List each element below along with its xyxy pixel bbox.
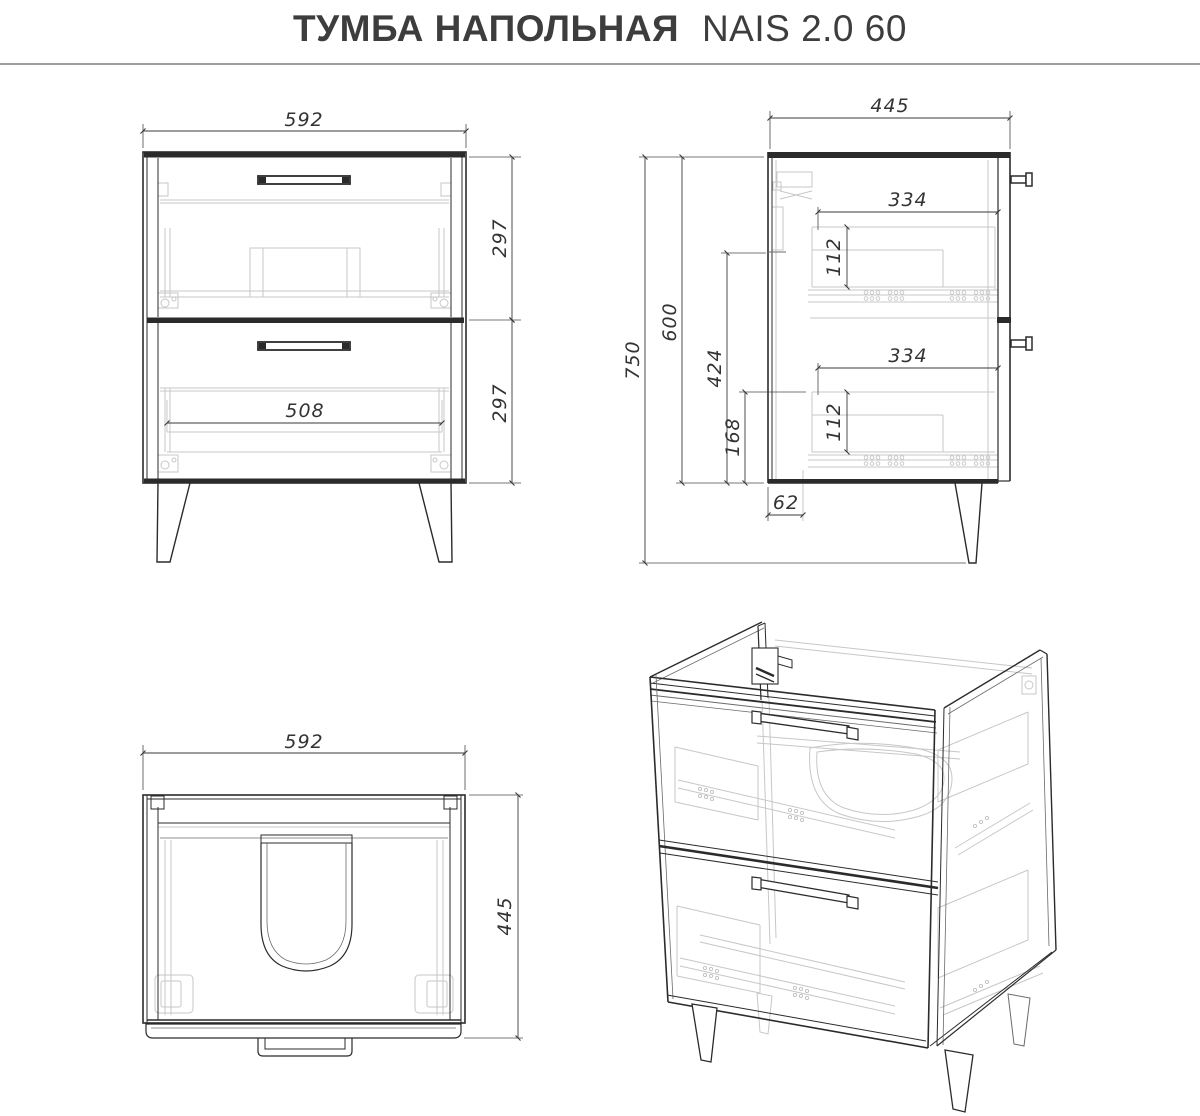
side-view: 445 750 600 424 168 62 xyxy=(622,95,1032,563)
side-divider-edge xyxy=(997,317,1011,323)
side-dim-lower-drawer-height-label: 112 xyxy=(823,402,845,441)
top-view: 592 445 xyxy=(143,731,523,1056)
front-bottom-edge xyxy=(144,479,465,484)
iso-view xyxy=(650,622,1056,1112)
iso-cabinet-body xyxy=(650,622,1056,1048)
side-dim-depth: 445 xyxy=(770,95,1010,149)
side-dim-upper-drawer-depth: 334 xyxy=(818,189,998,230)
side-dim-lower-drawer-depth: 334 xyxy=(818,345,998,395)
side-dim-upper-drawer-height: 112 xyxy=(823,227,847,287)
top-dim-width-label: 592 xyxy=(284,731,323,753)
front-dim-upper-drawer: 297 xyxy=(469,157,521,320)
side-dim-total-height-label: 750 xyxy=(622,340,644,379)
iso-mounting-bracket xyxy=(752,648,792,684)
iso-internals xyxy=(675,640,1043,1015)
top-handle xyxy=(258,1038,352,1056)
front-dim-lower-label: 297 xyxy=(489,383,511,422)
side-slide-holes xyxy=(864,291,990,466)
side-lower-handle xyxy=(1011,337,1032,350)
iso-front-right-leg xyxy=(945,1050,973,1112)
front-dim-width-label: 592 xyxy=(284,109,323,131)
side-dim-lower-zone: 168 xyxy=(722,392,806,483)
iso-back-right-leg xyxy=(1008,994,1030,1046)
iso-front-left-leg xyxy=(692,1004,717,1062)
top-dim-width: 592 xyxy=(143,731,465,790)
front-dim-inner-width: 508 xyxy=(167,400,442,423)
front-view: 592 297 297 508 xyxy=(143,109,521,562)
side-dim-depth-label: 445 xyxy=(870,95,909,117)
side-dim-inner-height-label: 424 xyxy=(704,348,726,387)
side-upper-handle xyxy=(1011,173,1032,186)
side-dim-upper-drawer-depth-label: 334 xyxy=(888,189,927,211)
side-dim-lower-zone-label: 168 xyxy=(722,417,744,456)
technical-drawing: 592 297 297 508 xyxy=(0,0,1200,1116)
top-dim-depth: 445 xyxy=(464,795,523,1038)
front-cabinet-body xyxy=(143,152,466,483)
front-dim-width: 592 xyxy=(143,109,466,148)
top-internals xyxy=(155,827,453,1015)
front-lower-handle xyxy=(258,342,350,350)
front-drawer-divider xyxy=(147,318,464,324)
side-dim-body-height-label: 600 xyxy=(659,302,681,341)
top-cabinet-body xyxy=(143,795,465,1023)
side-dim-back-clearance-label: 62 xyxy=(773,492,799,514)
front-dim-upper-label: 297 xyxy=(489,218,511,257)
front-upper-handle xyxy=(258,176,350,184)
front-left-leg xyxy=(157,483,190,562)
front-right-leg xyxy=(419,483,452,562)
iso-upper-handle xyxy=(752,711,858,740)
front-top-edge xyxy=(144,152,465,158)
side-dim-lower-drawer-height: 112 xyxy=(823,392,847,452)
front-dim-lower-drawer: 297 xyxy=(469,320,521,483)
side-dim-lower-drawer-depth-label: 334 xyxy=(888,345,927,367)
front-dim-inner-label: 508 xyxy=(285,400,324,422)
side-dim-back-clearance: 62 xyxy=(768,487,803,521)
side-dim-upper-drawer-height-label: 112 xyxy=(823,237,845,276)
side-dim-body-height: 600 xyxy=(659,157,764,483)
side-leg xyxy=(955,483,982,563)
front-internals-upper xyxy=(158,183,451,308)
side-internals xyxy=(772,160,998,521)
top-sink-cutout xyxy=(261,835,352,971)
side-top-edge xyxy=(768,152,1010,158)
top-dim-depth-label: 445 xyxy=(494,896,516,935)
top-front-overhang xyxy=(146,1024,461,1038)
